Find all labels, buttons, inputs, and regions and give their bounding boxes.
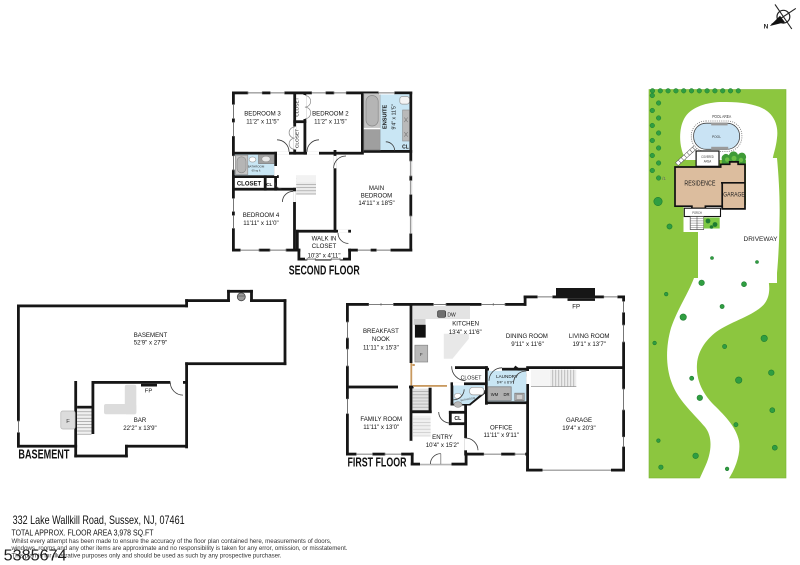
svg-text:11'11" x 9'11": 11'11" x 9'11" [483,432,518,439]
svg-text:PORCH: PORCH [692,211,702,215]
svg-text:BEDROOM 4: BEDROOM 4 [243,212,280,219]
svg-text:5385674: 5385674 [4,548,67,565]
svg-text:FP: FP [572,304,580,311]
svg-text:ENTRY: ENTRY [432,434,453,441]
svg-text:9'4" x 11'5": 9'4" x 11'5" [391,104,397,129]
svg-text:GARAGE: GARAGE [723,192,745,199]
svg-text:11'2" x 11'5": 11'2" x 11'5" [246,119,279,126]
svg-text:AREA: AREA [704,159,712,163]
svg-text:NOOK: NOOK [372,336,390,343]
svg-text:BEDROOM: BEDROOM [361,193,393,200]
svg-text:FAMILY ROOM: FAMILY ROOM [360,416,402,423]
svg-text:CL: CL [266,182,272,187]
svg-text:SECOND FLOOR: SECOND FLOOR [289,263,360,277]
svg-text:COVERED: COVERED [701,155,714,159]
svg-text:52'9" x 27'9": 52'9" x 27'9" [134,340,167,347]
svg-text:BREAKFAST: BREAKFAST [363,328,399,335]
svg-text:CLOSET: CLOSET [237,182,262,188]
svg-text:/1: /1 [662,176,666,181]
svg-text:WM: WM [491,392,499,397]
svg-text:CLOSET: CLOSET [295,97,301,116]
svg-text:BASEMENT: BASEMENT [18,447,69,461]
svg-text:19'1" x 13'7": 19'1" x 13'7" [572,341,605,348]
svg-text:FIRST FLOOR: FIRST FLOOR [348,456,407,470]
svg-text:CL: CL [402,145,409,151]
svg-text:11'11" x 13'0": 11'11" x 13'0" [363,424,399,431]
svg-text:N: N [764,24,769,31]
svg-text:DRIVEWAY: DRIVEWAY [744,236,779,243]
svg-text:DW: DW [447,313,456,319]
svg-text:GARAGE: GARAGE [566,417,592,424]
svg-text:22'2" x 13'9": 22'2" x 13'9" [123,425,156,432]
svg-text:14'11" x 18'5": 14'11" x 18'5" [358,200,394,207]
svg-text:BATHROOM: BATHROOM [248,165,265,169]
svg-text:F: F [420,352,423,357]
svg-text:CLOSET: CLOSET [295,129,301,148]
svg-text:OFFICE: OFFICE [490,425,512,432]
svg-text:BAR: BAR [134,417,147,424]
svg-text:Whilst every attempt has been: Whilst every attempt has been made to en… [12,538,332,545]
svg-text:ENSUITE: ENSUITE [382,105,388,130]
svg-text:F: F [66,419,70,425]
svg-text:KITCHEN: KITCHEN [452,321,479,328]
svg-text:11'11" x 11'0": 11'11" x 11'0" [243,220,278,227]
svg-text:6'4" x 6'9": 6'4" x 6'9" [497,380,514,384]
svg-text:MAIN: MAIN [369,185,384,192]
svg-text:TOTAL APPROX. FLOOR AREA 3,978: TOTAL APPROX. FLOOR AREA 3,978 SQ.FT [12,529,154,538]
svg-text:LIVING ROOM: LIVING ROOM [569,333,610,340]
svg-text:WALK IN: WALK IN [312,236,337,243]
svg-text:69 sq ft: 69 sq ft [252,168,261,172]
svg-text:CLOSET: CLOSET [312,243,337,250]
svg-text:POOL AREA: POOL AREA [712,114,731,119]
svg-text:10'4" x 15'2": 10'4" x 15'2" [426,442,459,449]
svg-text:FP: FP [145,389,153,395]
svg-text:BEDROOM 3: BEDROOM 3 [244,111,281,118]
svg-text:332 Lake Wallkill Road, Sussex: 332 Lake Wallkill Road, Sussex, NJ, 0746… [13,513,185,527]
svg-text:DINING ROOM: DINING ROOM [506,333,548,340]
svg-text:DR: DR [503,392,509,397]
svg-text:11'2" x 11'5": 11'2" x 11'5" [314,119,347,126]
svg-text:RESIDENCE: RESIDENCE [684,178,715,187]
svg-text:BASEMENT: BASEMENT [134,332,168,339]
svg-text:BEDROOM 2: BEDROOM 2 [312,111,349,118]
svg-text:19'4" x 20'3": 19'4" x 20'3" [562,425,595,432]
svg-text:13'4" x 11'6": 13'4" x 11'6" [449,329,482,336]
svg-text:9'11" x 11'6": 9'11" x 11'6" [511,341,544,348]
svg-text:POOL: POOL [712,134,722,139]
svg-text:11'11" x 15'3": 11'11" x 15'3" [363,345,399,352]
svg-text:CL: CL [454,416,462,422]
